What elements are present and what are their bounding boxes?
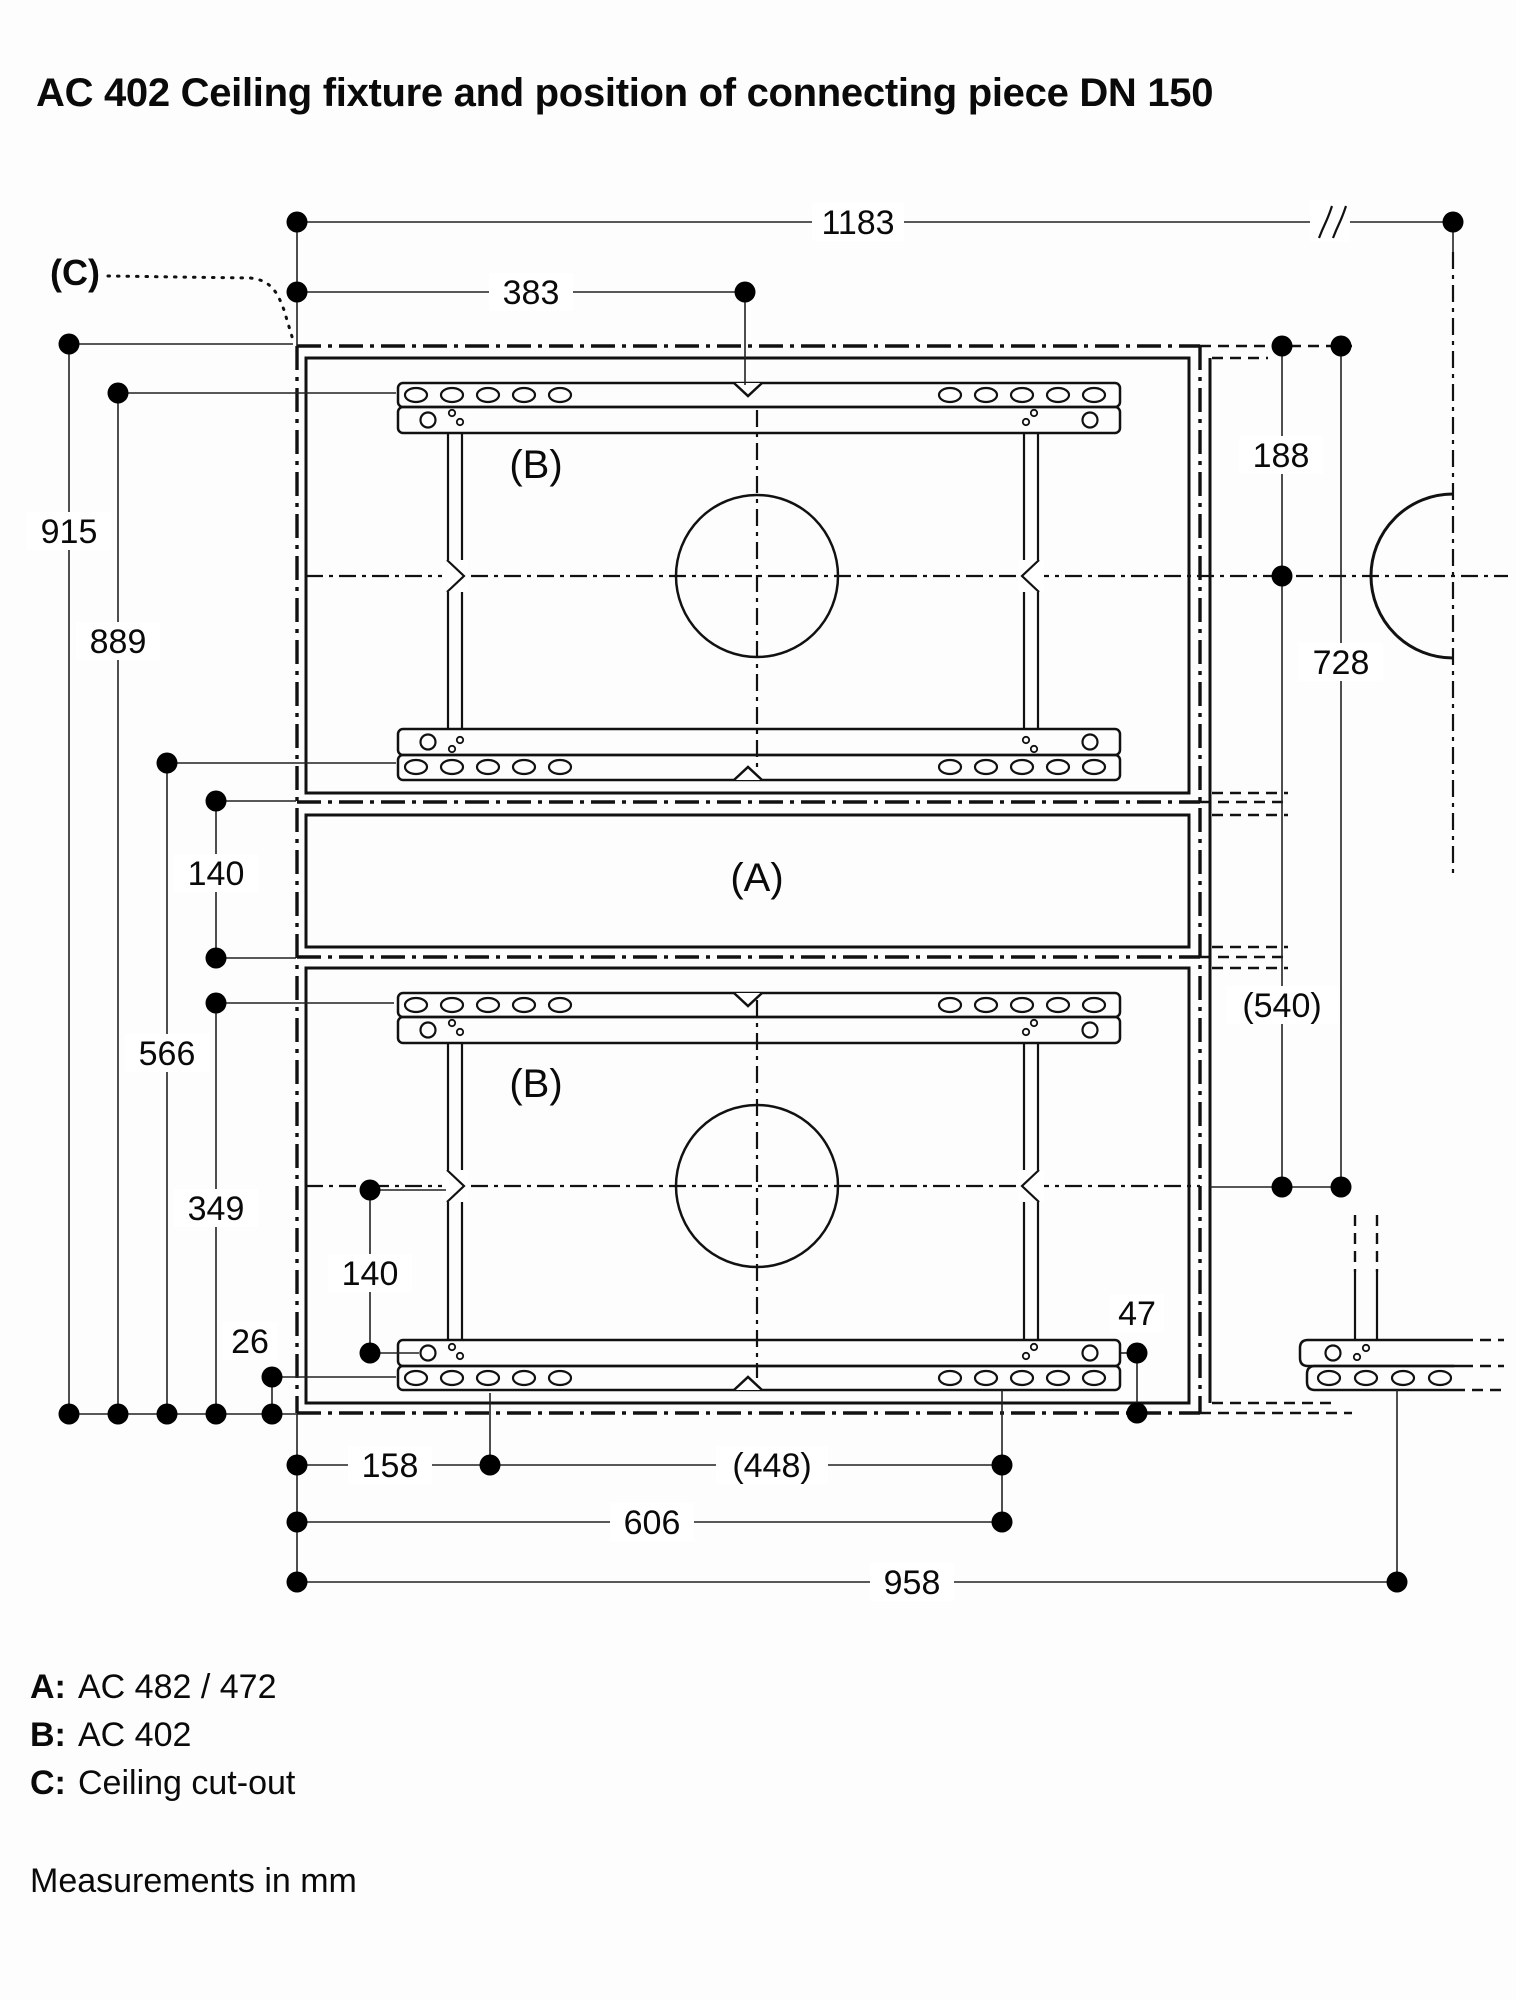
dim-915: 915: [27, 512, 111, 551]
svg-text:889: 889: [90, 623, 147, 661]
svg-text:606: 606: [624, 1504, 681, 1542]
dim-958: 958: [870, 1563, 954, 1602]
technical-drawing-page: AC 402 Ceiling fixture and position of c…: [0, 0, 1516, 2000]
svg-text:188: 188: [1253, 437, 1310, 475]
svg-text:140: 140: [188, 855, 245, 893]
dim-540: (540): [1226, 986, 1338, 1025]
label-c: (C): [50, 252, 100, 293]
dim-140b: 140: [328, 1254, 412, 1293]
svg-text:158: 158: [362, 1447, 419, 1485]
legend-value-b: AC 402: [78, 1716, 191, 1754]
break-symbol: [1310, 200, 1350, 242]
legend-key-a: A:: [30, 1668, 66, 1706]
label-b-lower: (B): [509, 1062, 562, 1106]
svg-text:140: 140: [342, 1255, 399, 1293]
legend-key-b: B:: [30, 1716, 66, 1754]
ceiling-fixture-diagram: AC 402 Ceiling fixture and position of c…: [0, 0, 1516, 2000]
dim-1183: 1183: [812, 203, 904, 242]
legend-key-c: C:: [30, 1764, 66, 1802]
dim-728: 728: [1299, 643, 1383, 682]
dim-188: 188: [1239, 436, 1323, 475]
svg-text:1183: 1183: [821, 204, 894, 242]
dim-448: (448): [716, 1446, 828, 1485]
legend-value-c: Ceiling cut-out: [78, 1764, 296, 1802]
dim-383: 383: [489, 273, 573, 312]
svg-text:(540): (540): [1242, 987, 1321, 1025]
dim-349: 349: [174, 1189, 258, 1228]
svg-text:383: 383: [503, 274, 560, 312]
svg-text:915: 915: [41, 513, 98, 551]
label-b-upper: (B): [509, 443, 562, 487]
dim-158: 158: [348, 1446, 432, 1485]
measurements-note: Measurements in mm: [30, 1862, 357, 1900]
page-title: AC 402 Ceiling fixture and position of c…: [36, 71, 1213, 115]
svg-text:728: 728: [1313, 644, 1370, 682]
dim-566: 566: [125, 1034, 209, 1073]
dim-606: 606: [610, 1503, 694, 1542]
dim-889: 889: [76, 622, 160, 661]
dim-47: 47: [1110, 1294, 1164, 1333]
svg-text:566: 566: [139, 1035, 196, 1073]
label-a: (A): [730, 856, 783, 900]
svg-text:47: 47: [1118, 1295, 1156, 1333]
legend-value-a: AC 482 / 472: [78, 1668, 276, 1706]
svg-text:958: 958: [884, 1564, 941, 1602]
dim-140a: 140: [174, 854, 258, 893]
svg-text:349: 349: [188, 1190, 245, 1228]
dim-26: 26: [222, 1322, 278, 1361]
svg-text:(448): (448): [732, 1447, 811, 1485]
svg-text:26: 26: [231, 1323, 269, 1361]
